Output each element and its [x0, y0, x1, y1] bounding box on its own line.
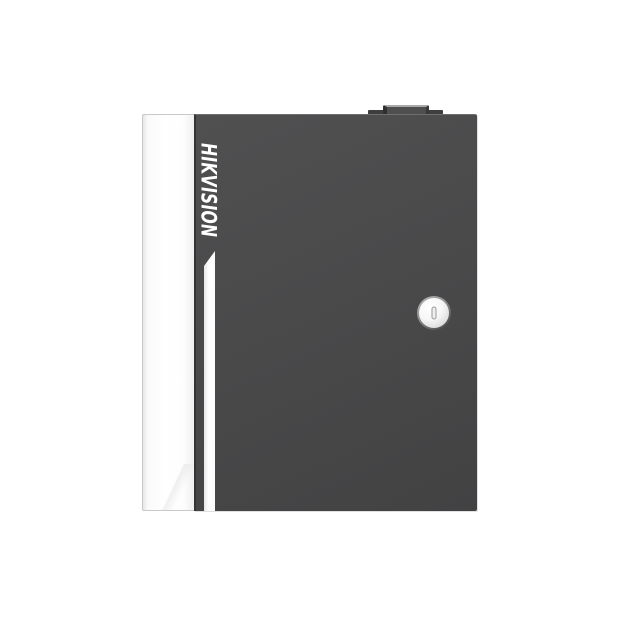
door-accent-stripe: [204, 251, 215, 511]
keyhole-slot-icon: [432, 307, 437, 320]
lock-face: [419, 298, 449, 328]
product-photo: HIKVISION: [0, 0, 620, 620]
key-lock: [417, 296, 451, 330]
enclosure-side-panel: [142, 114, 194, 511]
top-hinge-cap: [383, 105, 429, 114]
access-controller-enclosure: HIKVISION: [142, 114, 477, 511]
enclosure-door: HIKVISION: [194, 114, 477, 511]
brand-logo: HIKVISION: [196, 143, 221, 231]
